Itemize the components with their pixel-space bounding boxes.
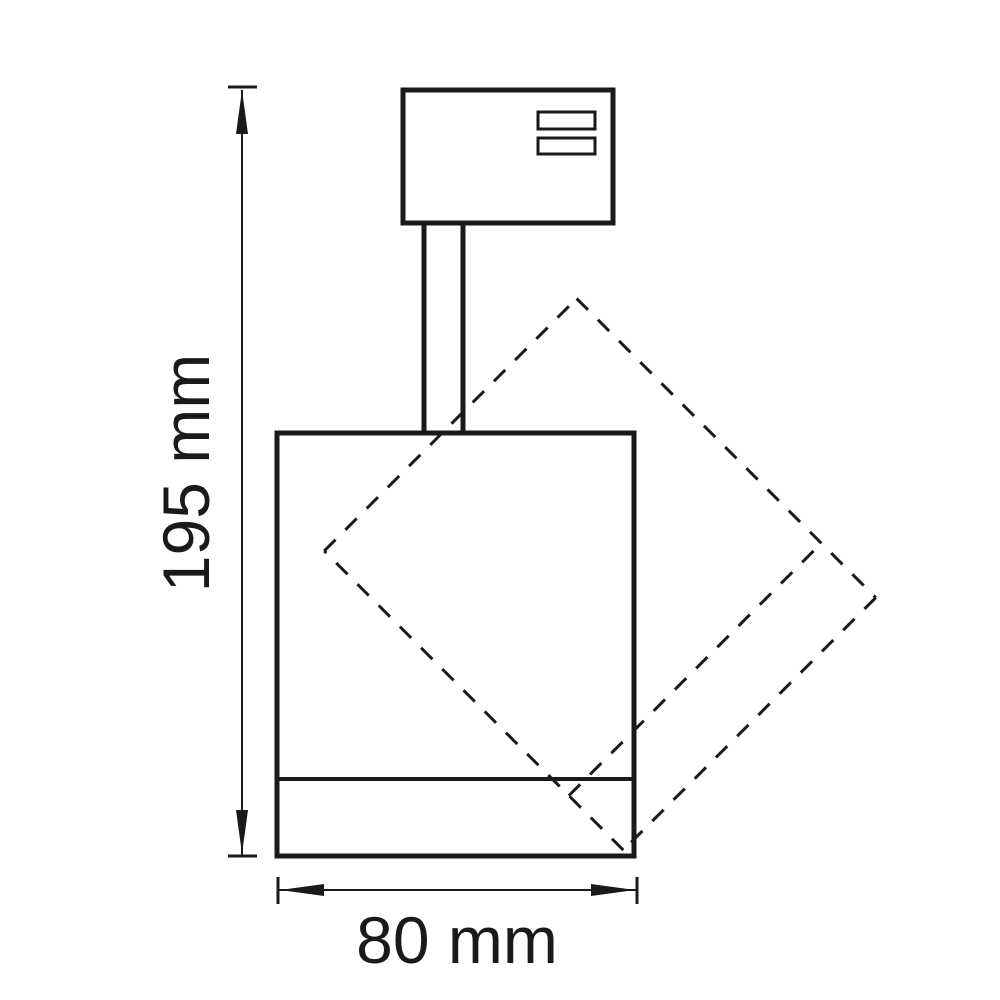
width-dimension: 80 mm [278,877,637,977]
width-dimension-label: 80 mm [356,903,558,977]
lamp-body [277,433,634,856]
width-dimension-arrow-left [280,884,324,896]
lamp-body-outline [277,433,634,856]
height-dimension-arrow-down [236,810,248,854]
rotated-trim-dashed-line [569,543,821,795]
height-dimension: 195 mm [149,87,257,856]
track-spotlight-dimension-drawing: 195 mm 80 mm [0,0,1000,1000]
dimension-drawing-page: 195 mm 80 mm [0,0,1000,1000]
height-dimension-label: 195 mm [149,354,223,592]
stem [424,223,463,433]
track-adapter [403,90,613,223]
track-adapter-housing [403,90,613,223]
rotated-body-dashed-outline [324,299,876,851]
width-dimension-arrow-right [591,884,635,896]
height-dimension-arrow-up [236,90,248,134]
adapter-contact-slot-2 [538,138,595,154]
adapter-contact-slot-1 [538,112,595,129]
rotated-body-outline-group [324,299,876,851]
